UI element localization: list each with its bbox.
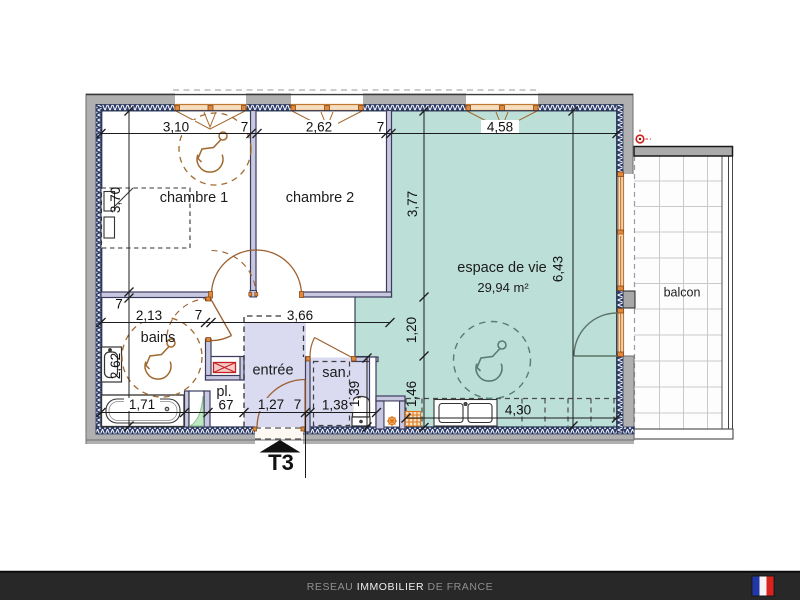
svg-text:1,71: 1,71 — [129, 397, 155, 412]
svg-text:1,38: 1,38 — [322, 398, 348, 413]
svg-text:3,77: 3,77 — [405, 191, 420, 217]
svg-text:1,39: 1,39 — [347, 381, 362, 407]
svg-text:7: 7 — [241, 120, 249, 135]
svg-text:entrée: entrée — [252, 363, 293, 379]
svg-text:7: 7 — [115, 297, 123, 312]
svg-text:1,46: 1,46 — [404, 381, 419, 407]
svg-text:4,58: 4,58 — [487, 120, 513, 135]
svg-text:espace de vie: espace de vie — [457, 260, 546, 276]
svg-text:balcon: balcon — [664, 286, 701, 300]
svg-text:pl.: pl. — [216, 384, 231, 400]
svg-text:7: 7 — [377, 120, 385, 135]
svg-text:chambre 1: chambre 1 — [160, 190, 229, 206]
svg-text:1,27: 1,27 — [258, 397, 284, 412]
svg-text:chambre 2: chambre 2 — [286, 190, 355, 206]
svg-text:3,10: 3,10 — [163, 120, 189, 135]
svg-text:3,66: 3,66 — [287, 308, 313, 323]
svg-text:7: 7 — [195, 308, 203, 323]
svg-text:2,13: 2,13 — [136, 308, 162, 323]
svg-text:2,62: 2,62 — [108, 353, 123, 379]
svg-text:san.: san. — [322, 365, 349, 381]
svg-text:bains: bains — [141, 330, 176, 346]
svg-text:29,94 m²: 29,94 m² — [477, 280, 529, 295]
svg-text:RESEAU IMMOBILIER DE FRANCE: RESEAU IMMOBILIER DE FRANCE — [307, 581, 493, 593]
svg-text:T3: T3 — [268, 450, 294, 475]
svg-text:3,70: 3,70 — [108, 187, 123, 213]
svg-text:7: 7 — [294, 397, 302, 412]
svg-text:4,30: 4,30 — [505, 403, 531, 418]
svg-text:1,20: 1,20 — [404, 317, 419, 343]
svg-text:2,62: 2,62 — [306, 120, 332, 135]
svg-text:6,43: 6,43 — [551, 256, 566, 282]
